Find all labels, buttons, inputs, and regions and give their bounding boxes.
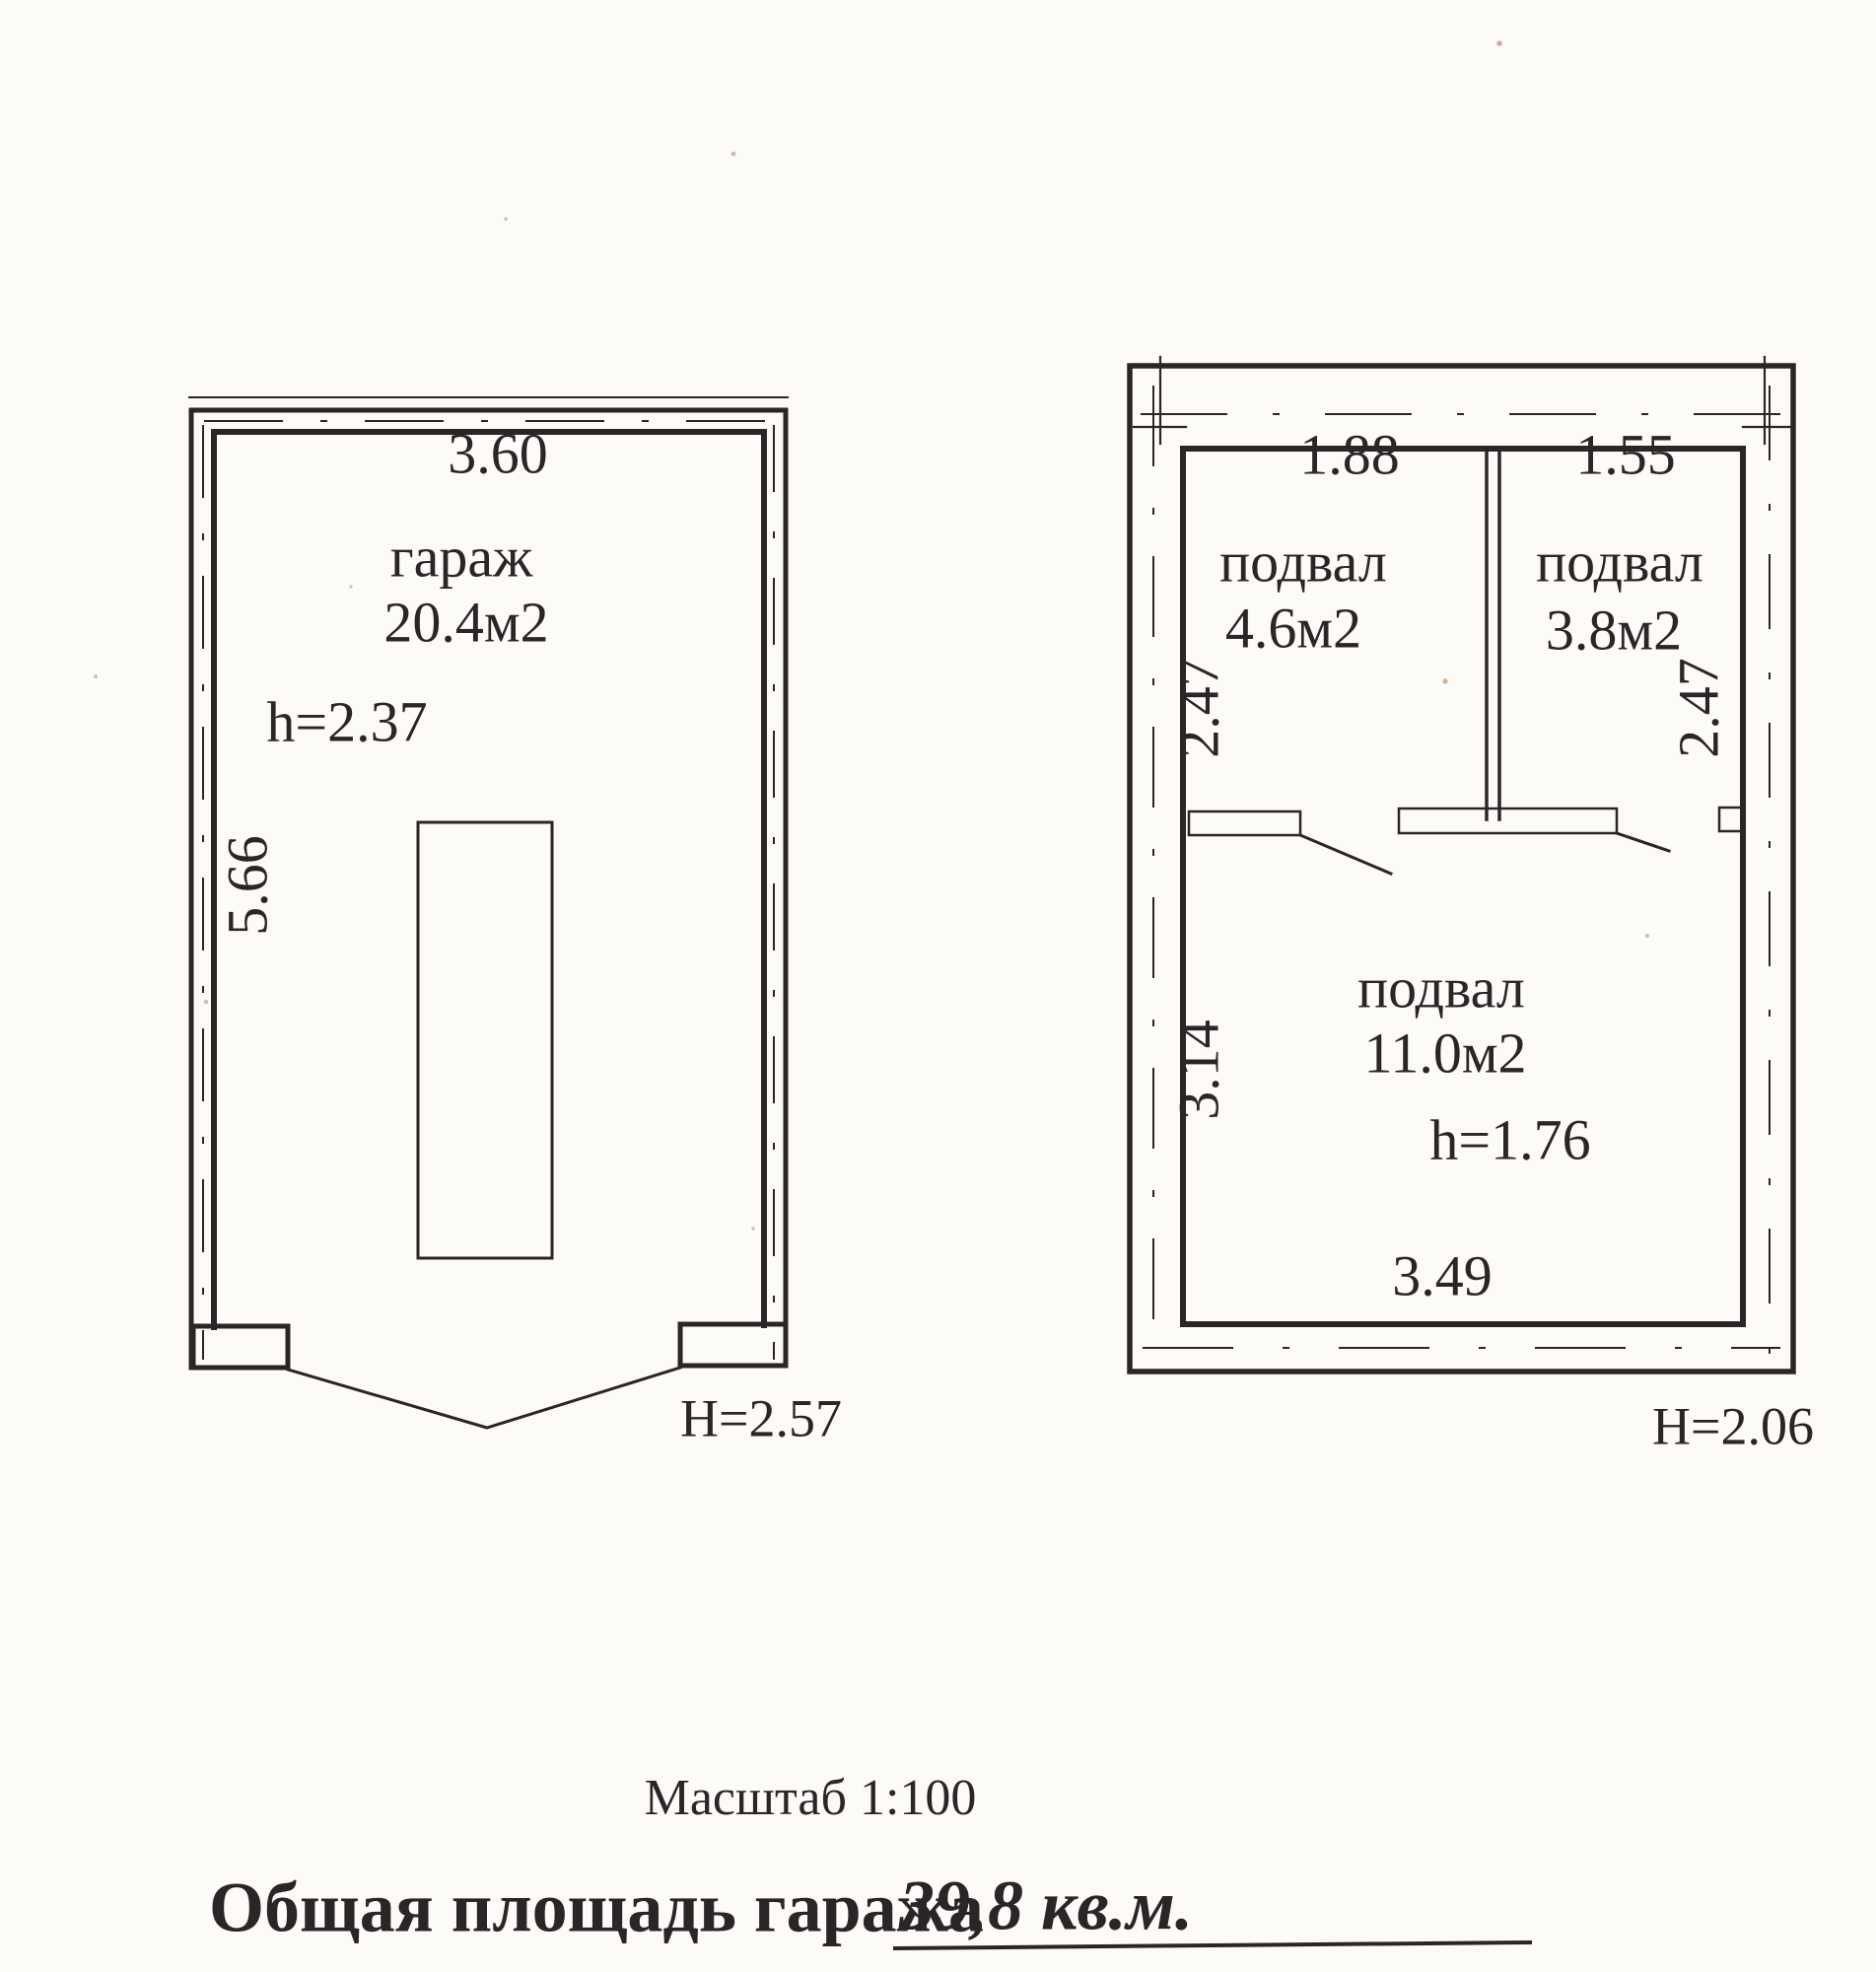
scale-note: Масштаб 1:100 bbox=[645, 1770, 977, 1826]
cellar3-ceiling-height: h=1.76 bbox=[1429, 1107, 1590, 1171]
basement-floor-plan: 1.88 подвал 4.6м2 2.47 1.55 подвал 3.8м2… bbox=[1130, 357, 1814, 1455]
scan-speck bbox=[751, 1227, 755, 1231]
basement-partition-wall bbox=[1487, 452, 1499, 819]
scan-speck bbox=[204, 1000, 209, 1005]
cellar2-label: подвал bbox=[1536, 529, 1703, 594]
total-area-label: Общая площадь гаража bbox=[209, 1868, 984, 1947]
garage-inspection-pit bbox=[418, 822, 552, 1258]
total-area-value: 39,8 кв.м. bbox=[898, 1866, 1193, 1945]
garage-exterior-height: H=2.57 bbox=[680, 1388, 842, 1447]
cellar2-width-dimension: 1.55 bbox=[1575, 422, 1676, 486]
floor-plan-drawing: 3.60 гараж 20.4м2 h=2.37 5.66 H=2.57 1.8… bbox=[0, 0, 1876, 1972]
basement-lintel-left bbox=[1189, 811, 1300, 835]
garage-width-dimension: 3.60 bbox=[448, 421, 548, 485]
scan-speck bbox=[731, 152, 736, 157]
footer-notes: Масштаб 1:100 Общая площадь гаража 39,8 … bbox=[209, 1770, 1530, 1948]
cellar3-depth-dimension: 3.14 bbox=[1166, 1020, 1230, 1120]
basement-outer-wall bbox=[1130, 366, 1793, 1372]
garage-gate-pier-right bbox=[680, 1324, 786, 1366]
scan-speck bbox=[349, 585, 352, 588]
garage-gate-swing-lines bbox=[288, 1368, 680, 1428]
cellar1-area: 4.6м2 bbox=[1225, 596, 1361, 660]
basement-wall-stub-right bbox=[1719, 808, 1743, 831]
basement-lintel-middle bbox=[1399, 809, 1617, 833]
garage-ceiling-height: h=2.37 bbox=[266, 689, 427, 753]
garage-gate-pier-left bbox=[193, 1326, 288, 1368]
scan-speck-warm bbox=[1442, 678, 1447, 683]
basement-door-swing-left bbox=[1300, 835, 1391, 874]
cellar2-area: 3.8м2 bbox=[1546, 598, 1682, 662]
garage-floor-plan: 3.60 гараж 20.4м2 h=2.37 5.66 H=2.57 bbox=[189, 397, 842, 1447]
cellar1-depth-dimension: 2.47 bbox=[1166, 658, 1230, 758]
cellar1-label: подвал bbox=[1219, 529, 1387, 594]
cellar3-label: подвал bbox=[1357, 955, 1525, 1020]
scan-speck bbox=[504, 217, 508, 221]
scan-speck bbox=[94, 674, 98, 678]
cellar1-width-dimension: 1.88 bbox=[1299, 422, 1400, 486]
garage-depth-dimension: 5.66 bbox=[215, 835, 279, 936]
basement-exterior-height: H=2.06 bbox=[1652, 1396, 1814, 1455]
scan-speck-red bbox=[1496, 40, 1502, 46]
scan-speck bbox=[1645, 934, 1649, 938]
cellar2-depth-dimension: 2.47 bbox=[1666, 658, 1730, 758]
basement-door-swing-right bbox=[1617, 833, 1669, 851]
cellar3-area: 11.0м2 bbox=[1363, 1021, 1526, 1085]
garage-room-label: гараж bbox=[390, 525, 533, 589]
scanned-floor-plan-page: 3.60 гараж 20.4м2 h=2.37 5.66 H=2.57 1.8… bbox=[0, 0, 1876, 1972]
cellar3-width-dimension: 3.49 bbox=[1392, 1243, 1493, 1307]
garage-room-area: 20.4м2 bbox=[383, 590, 548, 654]
